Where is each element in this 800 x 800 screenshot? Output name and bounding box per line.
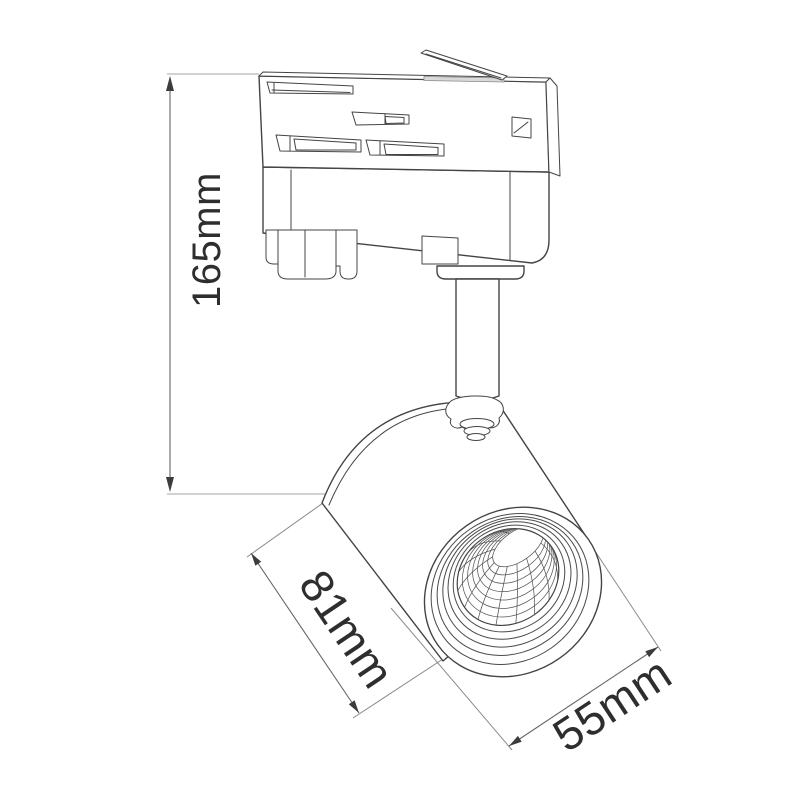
cable-grip <box>266 230 357 279</box>
joint-ring <box>467 434 485 441</box>
mounting-flange <box>437 266 524 279</box>
arrowhead-down <box>166 477 174 492</box>
arrowhead-downright <box>349 700 359 713</box>
stem <box>456 279 499 400</box>
step-block <box>422 236 458 264</box>
dimension-label-55mm: 55mm <box>544 647 681 762</box>
drawing-canvas: 165mm 81mm 55mm <box>0 0 800 800</box>
extension-line-upper <box>247 498 330 557</box>
locking-lever-edge <box>426 54 501 78</box>
track-light-dimension-drawing: 165mm 81mm 55mm <box>0 0 800 800</box>
arrowhead-upleft <box>251 553 261 566</box>
arrowhead-downleft <box>509 736 522 746</box>
track-adapter <box>259 50 560 441</box>
arrowhead-up <box>166 76 174 91</box>
dimension-label-165mm: 165mm <box>185 172 229 308</box>
